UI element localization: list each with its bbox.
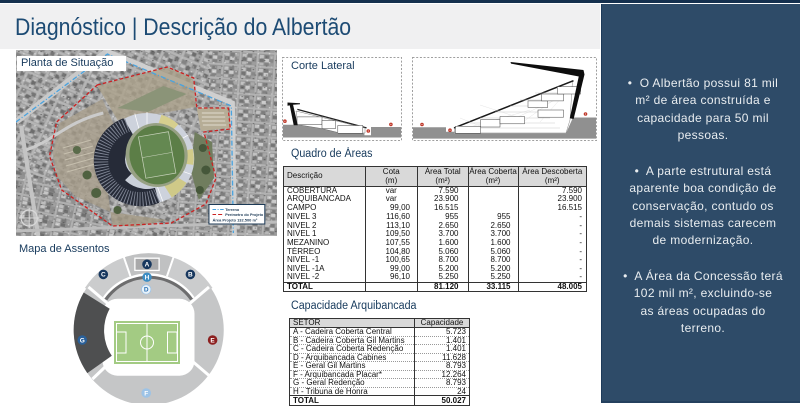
svg-text:G: G bbox=[80, 337, 85, 344]
svg-text:Área Projeto 132.500 m²: Área Projeto 132.500 m² bbox=[213, 218, 259, 223]
svg-text:Terreno: Terreno bbox=[225, 208, 240, 212]
svg-text:B: B bbox=[188, 272, 193, 279]
svg-text:Perímetro do Projeto: Perímetro do Projeto bbox=[225, 213, 264, 217]
svg-text:F: F bbox=[144, 390, 148, 397]
svg-text:A: A bbox=[145, 262, 150, 269]
svg-text:C: C bbox=[101, 272, 106, 279]
svg-text:E: E bbox=[210, 337, 215, 344]
svg-text:H: H bbox=[145, 275, 150, 282]
svg-text:D: D bbox=[144, 287, 149, 294]
